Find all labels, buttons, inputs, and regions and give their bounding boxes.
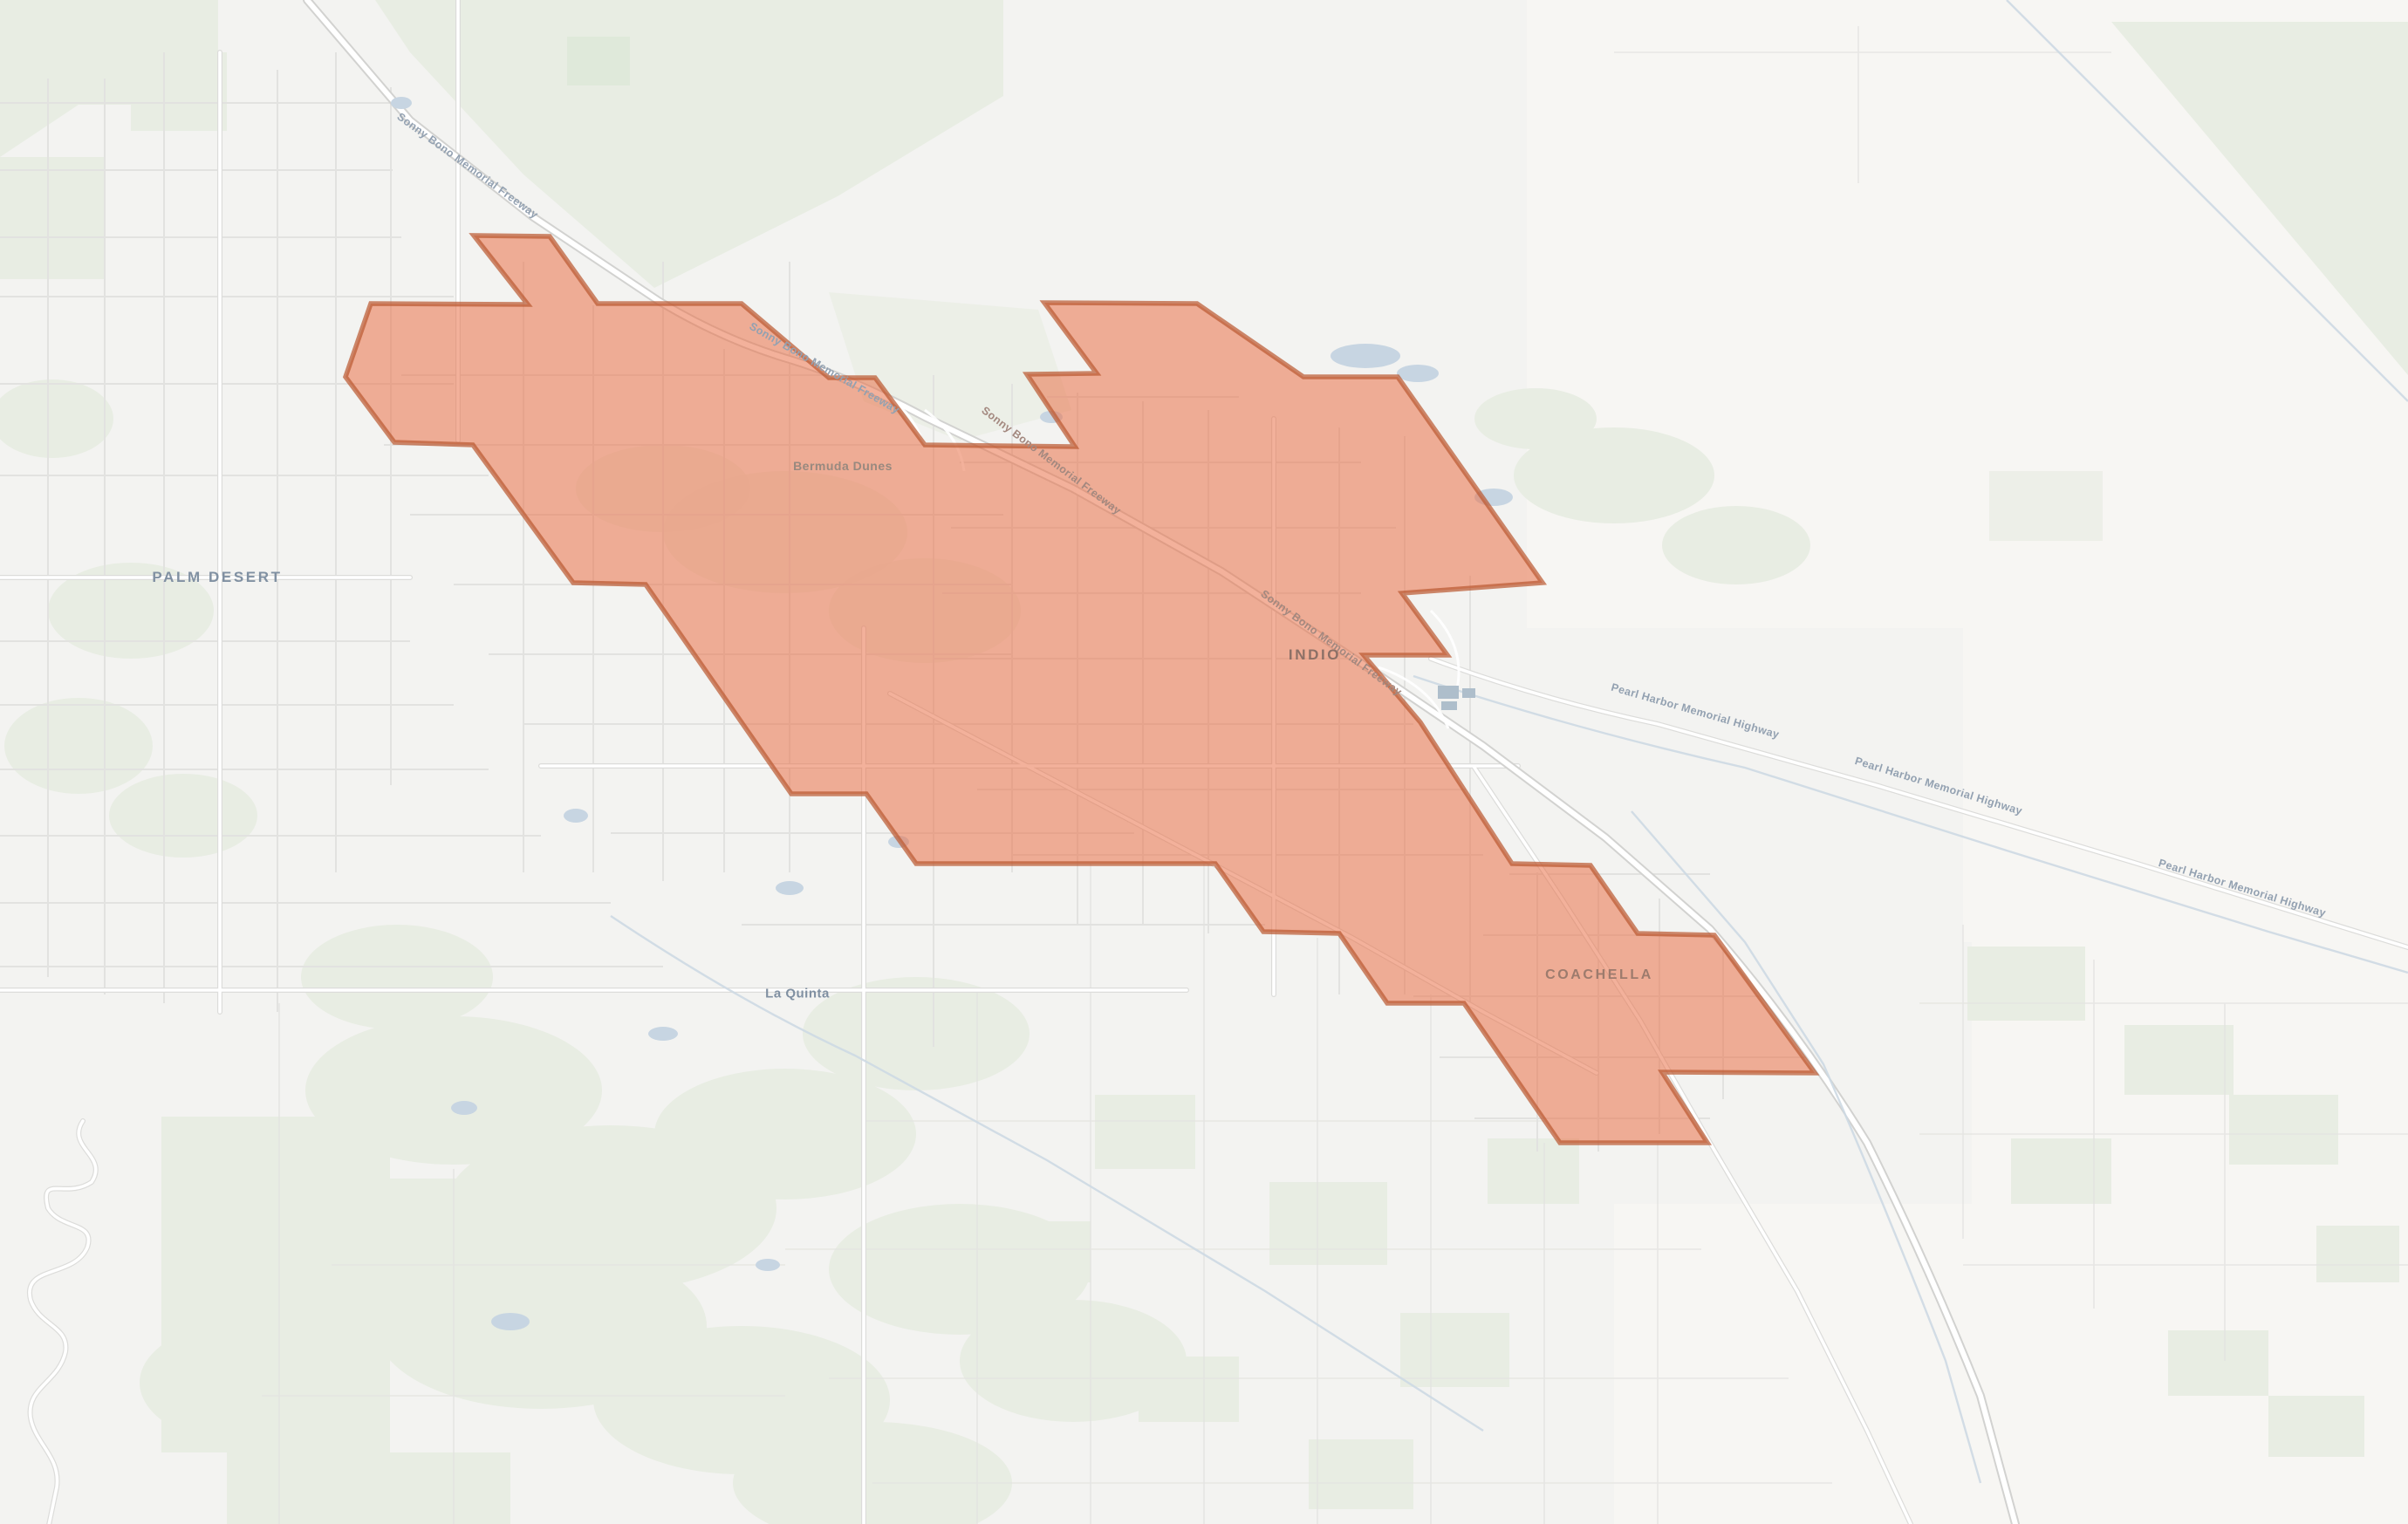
map-viewport[interactable]: PALM DESERT Bermuda Dunes INDIO La Quint…	[0, 0, 2408, 1524]
map-canvas[interactable]	[0, 0, 2408, 1524]
